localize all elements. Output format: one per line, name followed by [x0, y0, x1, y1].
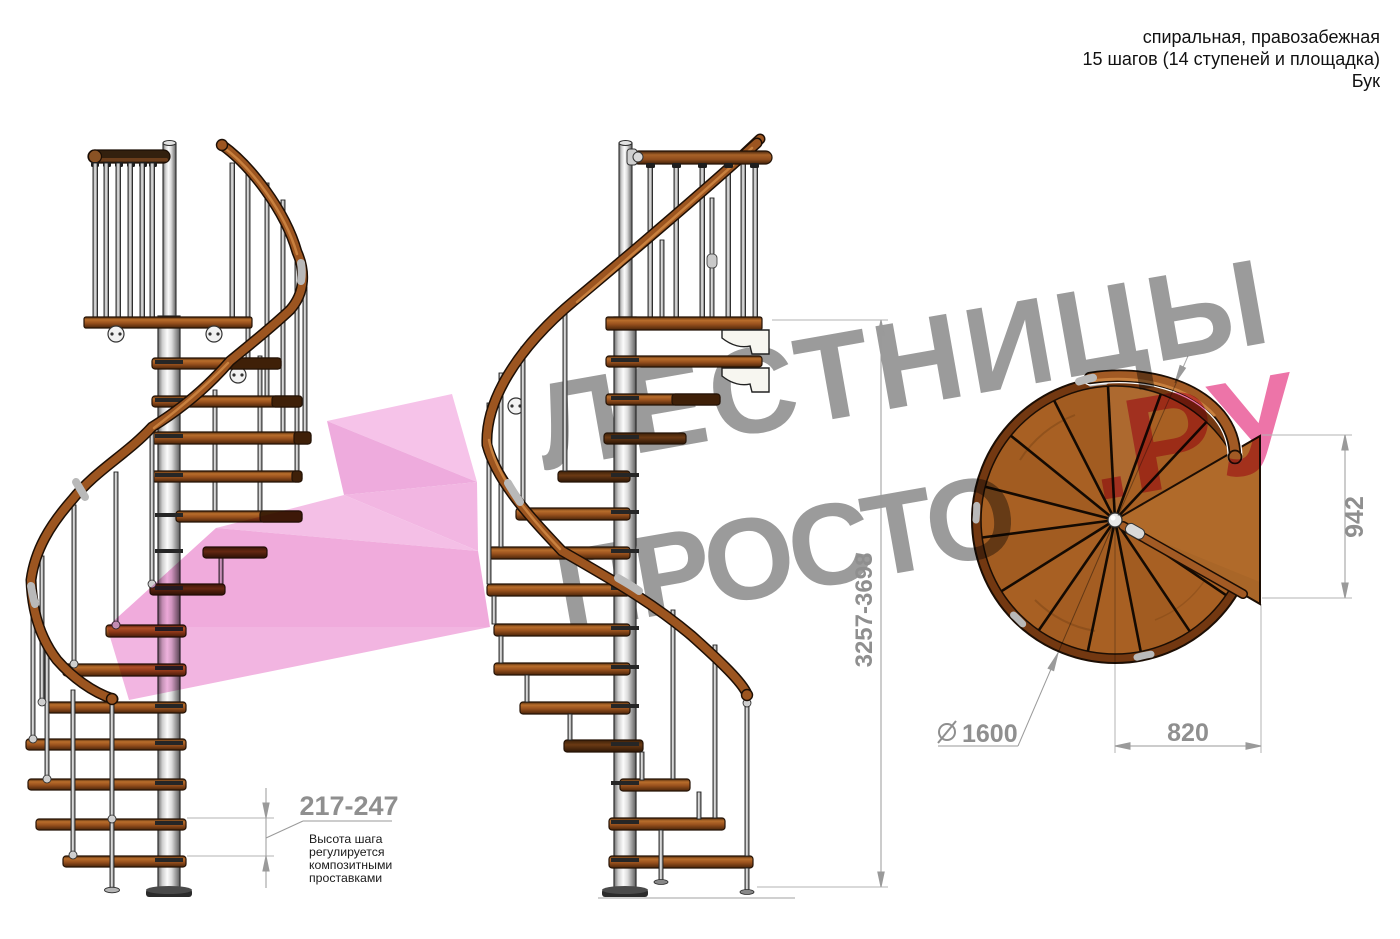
svg-text:проставками: проставками	[309, 871, 382, 885]
svg-text:регулируется: регулируется	[309, 845, 385, 859]
svg-text:1600: 1600	[962, 720, 1018, 748]
svg-text:композитными: композитными	[309, 858, 392, 872]
svg-text:Бук: Бук	[1352, 71, 1380, 91]
svg-text:3257-3698: 3257-3698	[851, 553, 878, 668]
svg-text:15 шагов (14 ступеней и площад: 15 шагов (14 ступеней и площадка)	[1082, 49, 1380, 69]
svg-text:спиральная, правозабежная: спиральная, правозабежная	[1143, 27, 1380, 47]
svg-text:820: 820	[1167, 719, 1209, 747]
svg-text:Высота шага: Высота шага	[309, 832, 383, 846]
svg-text:217-247: 217-247	[299, 791, 398, 821]
svg-text:942: 942	[1341, 496, 1369, 538]
